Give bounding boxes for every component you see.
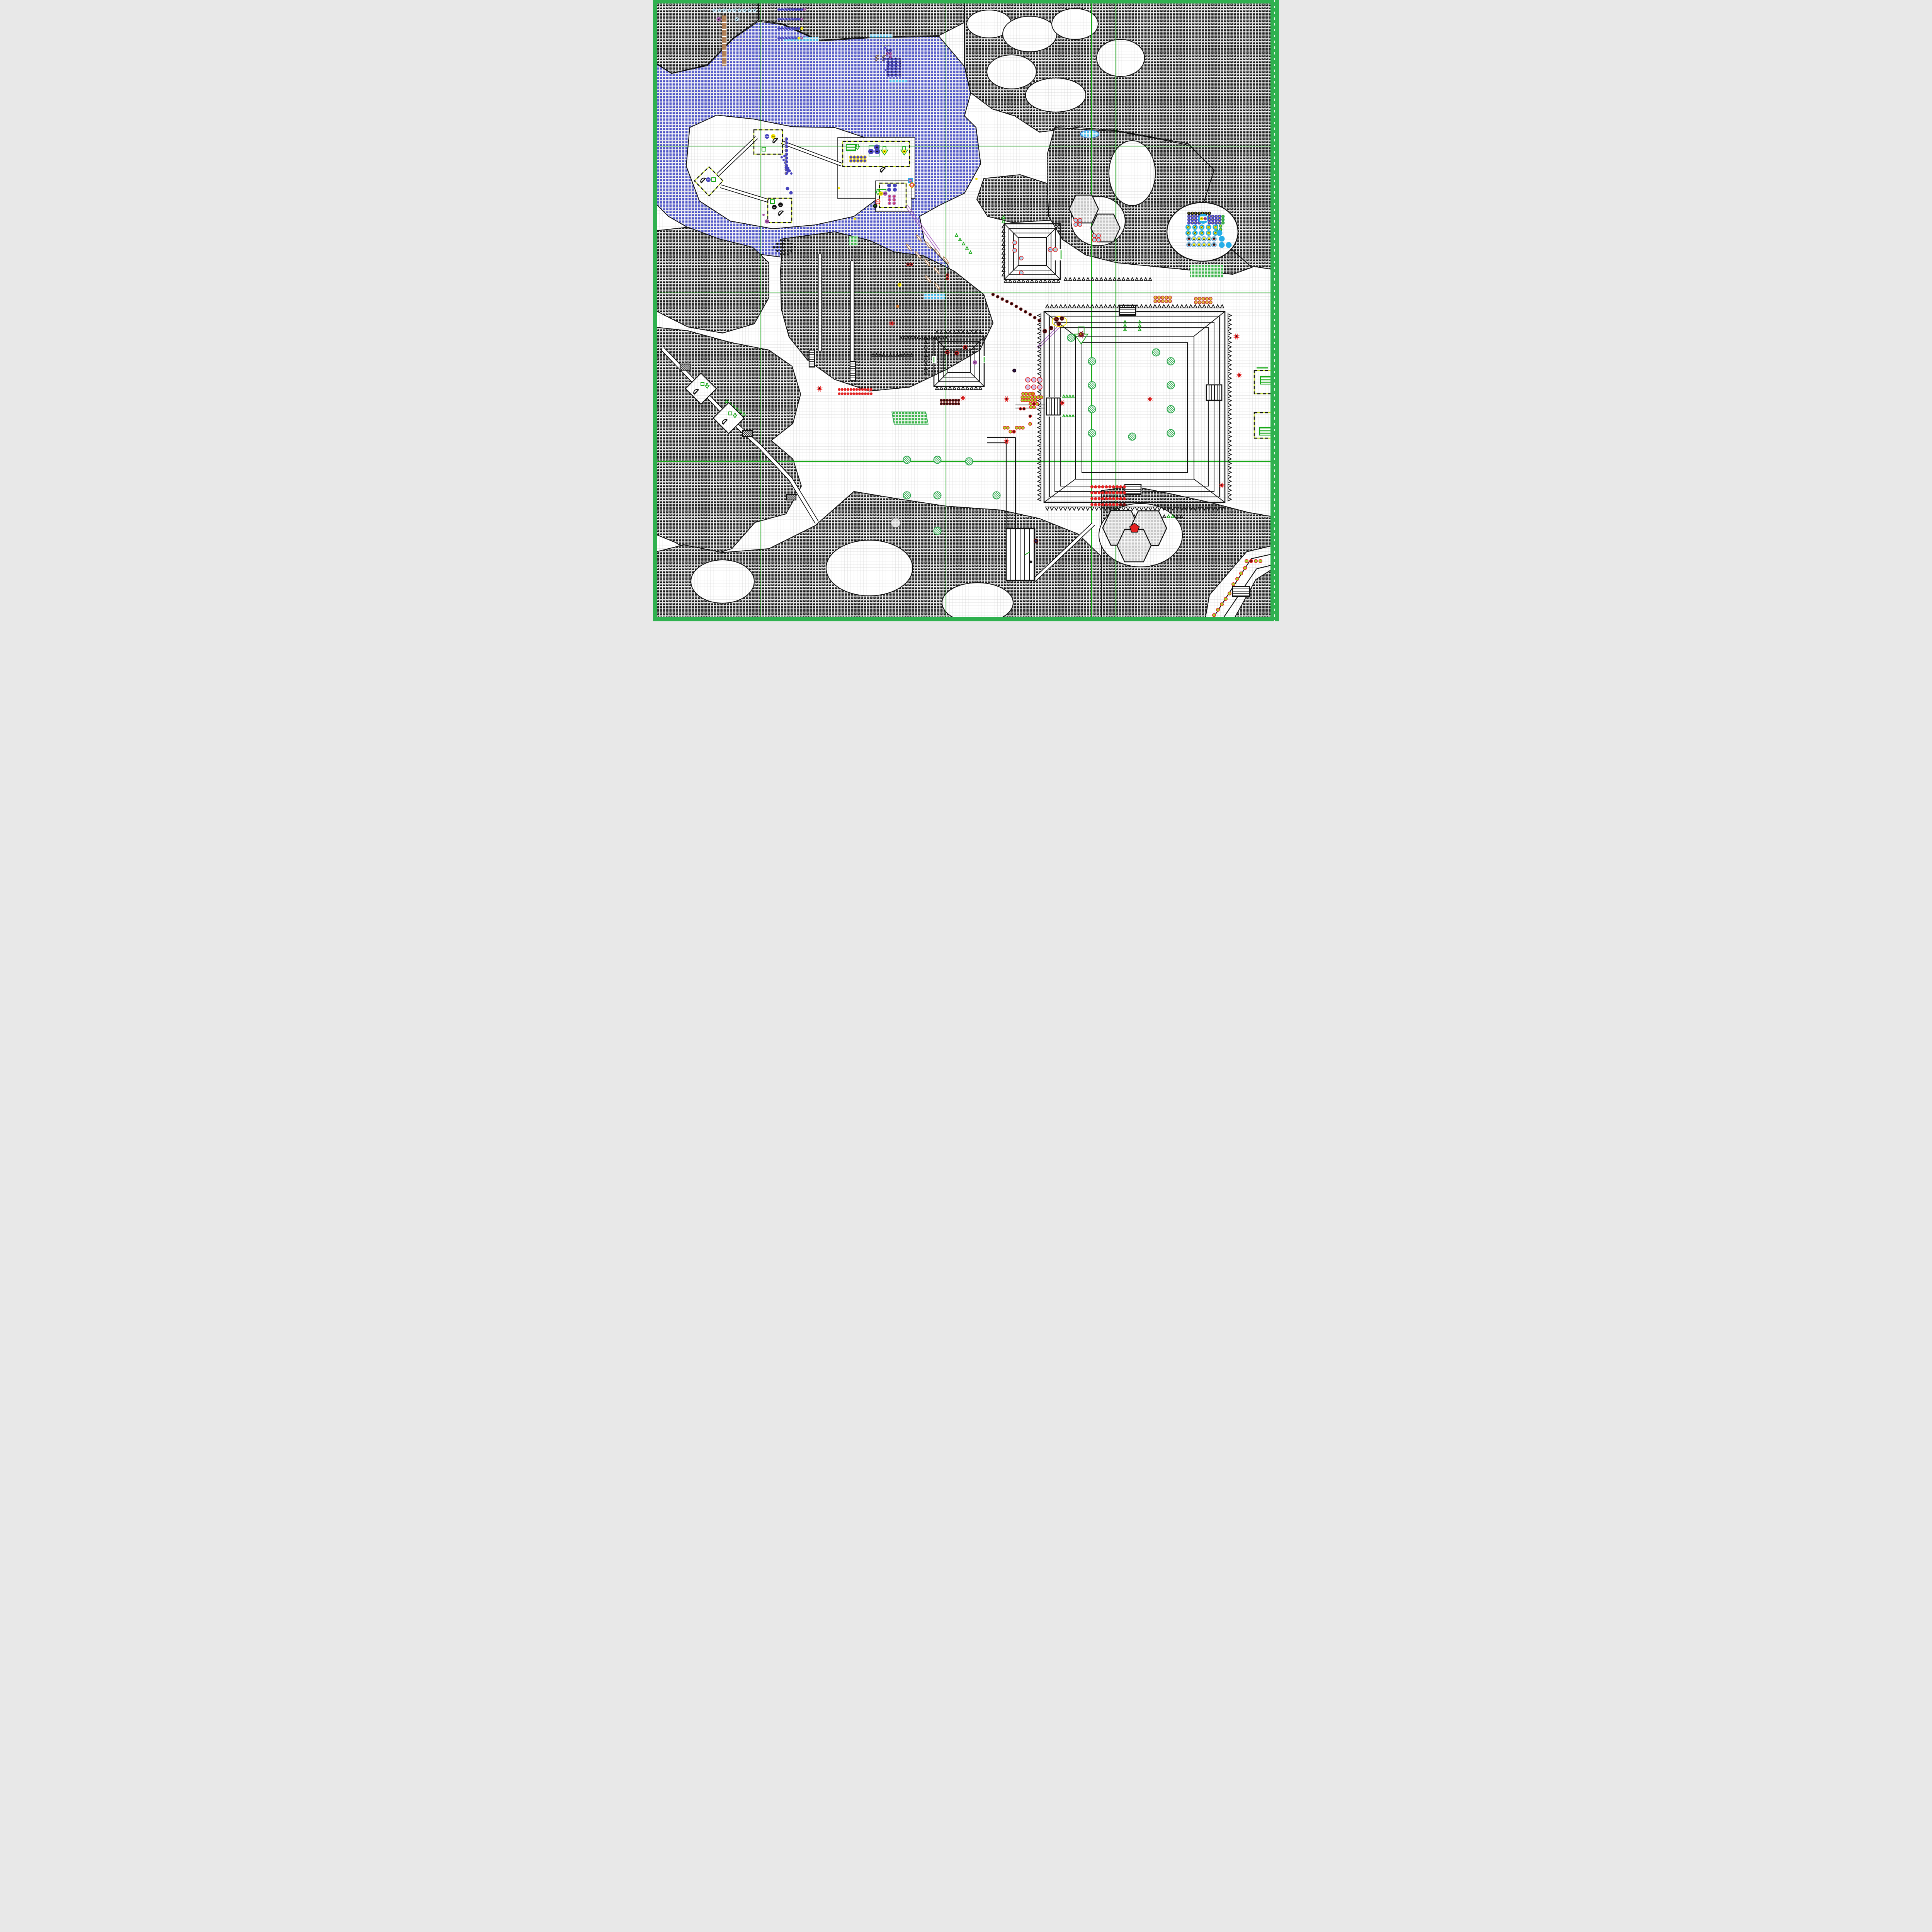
tree-icon bbox=[1167, 430, 1175, 437]
marker-label: 1 bbox=[779, 10, 780, 11]
dot bbox=[1092, 234, 1096, 238]
clearing bbox=[987, 55, 1036, 89]
dot bbox=[1161, 296, 1164, 299]
ship-inner bbox=[1213, 237, 1215, 240]
dot bbox=[1165, 296, 1168, 299]
map-viewport[interactable]: 13х13х66х10х10хОмДоОсБИМаЧуДНоАНе4хп0хпМ… bbox=[653, 0, 1279, 621]
marker-label: ♜ bbox=[1188, 222, 1190, 224]
dot bbox=[1032, 378, 1036, 382]
dot bbox=[949, 403, 951, 405]
marker-label: ♜ bbox=[1209, 219, 1210, 221]
dot bbox=[1025, 392, 1028, 395]
dot bbox=[780, 250, 782, 252]
axe-circle bbox=[785, 156, 788, 160]
marker-label: 2 bbox=[900, 66, 901, 67]
dot bbox=[1112, 497, 1115, 500]
marker-label: 2 bbox=[892, 69, 893, 71]
dot bbox=[1245, 560, 1248, 563]
fist-icon bbox=[870, 151, 872, 152]
palisade-bar bbox=[722, 15, 726, 66]
marker-label: 3 bbox=[896, 75, 897, 77]
fly-icon bbox=[903, 151, 905, 152]
ship-inner bbox=[1197, 243, 1200, 246]
dot bbox=[852, 393, 855, 395]
marker-label: ♜ bbox=[1212, 216, 1213, 218]
marker-label: Не bbox=[909, 180, 912, 182]
dot bbox=[1206, 301, 1209, 304]
dot bbox=[1036, 402, 1039, 405]
dot bbox=[1105, 497, 1108, 500]
eye bbox=[1221, 484, 1222, 486]
dot bbox=[787, 250, 789, 252]
tree-icon bbox=[1088, 358, 1096, 365]
hp5: 5хп bbox=[946, 350, 949, 354]
dot bbox=[907, 263, 910, 266]
dot bbox=[790, 243, 793, 245]
marker-label: 1 bbox=[900, 60, 901, 61]
marker-label: 1 bbox=[779, 19, 780, 21]
marker-label: 13х bbox=[1049, 327, 1053, 329]
tree-icon bbox=[966, 458, 973, 465]
marker-label: 66х bbox=[1055, 318, 1058, 321]
dot bbox=[1026, 385, 1030, 389]
dot bbox=[1194, 297, 1197, 300]
marker-label: 2 bbox=[892, 66, 893, 67]
dot bbox=[789, 191, 793, 195]
dot bbox=[1194, 301, 1197, 304]
dot bbox=[1094, 485, 1097, 488]
dot bbox=[1098, 503, 1101, 506]
dot-dark bbox=[1012, 430, 1015, 433]
shallow bbox=[886, 82, 910, 85]
fortress-ladder-s bbox=[1125, 485, 1141, 495]
marker-label: 2 bbox=[896, 69, 897, 71]
whip-box bbox=[1201, 232, 1203, 235]
marker-label: 2 bbox=[888, 72, 889, 74]
marker-label: 3 bbox=[791, 38, 792, 40]
dot bbox=[1232, 583, 1235, 586]
dot bbox=[943, 403, 945, 405]
axe-circle bbox=[785, 153, 788, 156]
tree-icon bbox=[934, 492, 941, 499]
dot bbox=[783, 253, 786, 255]
npc-ot: От bbox=[1034, 539, 1038, 543]
marker-label: ♜ bbox=[1195, 216, 1196, 218]
dot bbox=[1116, 491, 1119, 494]
marker-label: Но bbox=[884, 193, 887, 195]
dot bbox=[1037, 378, 1042, 382]
dot bbox=[1029, 402, 1032, 405]
hp5: 5хп bbox=[955, 351, 959, 355]
marker-label: 4хп bbox=[910, 185, 913, 186]
marker-label: ♜ bbox=[1212, 219, 1213, 221]
dot bbox=[940, 403, 942, 405]
dot bbox=[1021, 426, 1024, 429]
dot bbox=[954, 403, 957, 405]
marker-label: ♜ bbox=[1220, 225, 1221, 228]
dot bbox=[1019, 408, 1022, 410]
dot bbox=[1119, 485, 1122, 488]
marker-label: ♜ bbox=[1209, 213, 1210, 215]
dot bbox=[952, 399, 954, 401]
whip-box bbox=[1187, 226, 1190, 229]
dot bbox=[870, 393, 872, 395]
grass-gate bbox=[892, 412, 928, 424]
tree-icon bbox=[1088, 382, 1096, 389]
eye bbox=[819, 388, 820, 389]
marker-label: 2 bbox=[802, 19, 803, 21]
dot bbox=[853, 156, 856, 159]
marker-label: 2 bbox=[900, 69, 901, 71]
dot bbox=[1105, 491, 1108, 494]
dot bbox=[1006, 426, 1009, 429]
marker-label: ♜ bbox=[1215, 216, 1217, 218]
dot bbox=[893, 184, 897, 187]
marker-label: ♜ bbox=[1222, 222, 1224, 224]
dot bbox=[780, 239, 782, 241]
marker-label: 3 bbox=[900, 72, 901, 74]
dot bbox=[852, 388, 855, 391]
eye bbox=[1236, 335, 1237, 337]
marker-label: ♜ bbox=[1209, 216, 1210, 218]
world-map[interactable]: 13х13х66х10х10хОмДоОсБИМаЧуДНоАНе4хп0хпМ… bbox=[653, 0, 1279, 621]
ship-inner bbox=[1197, 237, 1200, 240]
dot bbox=[1206, 297, 1209, 300]
dot bbox=[858, 388, 861, 391]
dot bbox=[1105, 485, 1108, 488]
dot bbox=[1109, 491, 1112, 494]
marker-label: ♜ bbox=[1188, 219, 1190, 221]
stairs-green bbox=[1260, 376, 1272, 384]
dot bbox=[1168, 300, 1172, 303]
palisade bbox=[722, 15, 726, 66]
stairs-green bbox=[846, 145, 855, 151]
dot bbox=[1034, 399, 1037, 402]
dot bbox=[1154, 296, 1157, 299]
clearing bbox=[691, 560, 754, 603]
dot bbox=[838, 388, 841, 391]
marker-label: 5хп bbox=[964, 347, 967, 349]
dot bbox=[1161, 300, 1164, 303]
dot bbox=[856, 156, 859, 159]
dot bbox=[1123, 491, 1126, 494]
marker-label: 2 bbox=[785, 29, 786, 30]
dot bbox=[1220, 603, 1223, 606]
dot bbox=[1023, 408, 1026, 410]
dot-dark bbox=[1032, 402, 1036, 405]
marker-label: 3 bbox=[794, 29, 794, 30]
npc-m: М bbox=[873, 204, 878, 208]
ship-inner bbox=[1207, 243, 1210, 246]
marker-label: 3 bbox=[799, 10, 800, 11]
dot bbox=[1202, 297, 1205, 300]
npc-b: Б bbox=[765, 219, 769, 224]
stairs-green bbox=[1260, 427, 1271, 435]
npc-ma: Ма bbox=[1048, 248, 1053, 252]
wall-grate bbox=[1006, 529, 1035, 580]
dot bbox=[1119, 491, 1122, 494]
dot bbox=[1123, 503, 1126, 506]
npc-d: Д bbox=[879, 192, 883, 196]
dot bbox=[1027, 396, 1030, 399]
marker-label: И bbox=[718, 19, 719, 21]
dot bbox=[794, 246, 796, 248]
dot bbox=[762, 214, 765, 216]
dot bbox=[1029, 415, 1032, 418]
dot bbox=[1098, 491, 1101, 494]
marker-label: 1 bbox=[785, 10, 786, 11]
dot bbox=[780, 253, 782, 255]
dot bbox=[1109, 485, 1112, 488]
marker-label: До bbox=[772, 136, 774, 138]
dot bbox=[1027, 399, 1030, 402]
marker-label: 3 bbox=[797, 19, 798, 21]
dot bbox=[1074, 218, 1078, 222]
marker-label: 2 bbox=[788, 10, 789, 11]
marker-label: Ау bbox=[1204, 218, 1206, 220]
tree-icon bbox=[1129, 433, 1136, 440]
marker-label: ♜ bbox=[1222, 219, 1224, 221]
bridge-hatch bbox=[680, 364, 690, 370]
dot bbox=[1112, 491, 1115, 494]
marker-label: ♜ bbox=[1219, 216, 1220, 218]
tree-icon bbox=[1088, 430, 1096, 437]
marker-label: 3 bbox=[892, 75, 893, 77]
marker-label: 3 bbox=[797, 10, 798, 11]
marker-label: Чу bbox=[1054, 249, 1056, 251]
dot bbox=[1158, 296, 1161, 299]
stairs-green-frame bbox=[1260, 376, 1272, 384]
dot bbox=[1024, 310, 1027, 313]
fortress-gate-e bbox=[1206, 385, 1222, 400]
dot bbox=[1092, 238, 1096, 242]
dot bbox=[1119, 503, 1122, 506]
marker-label: ♜ bbox=[1192, 216, 1193, 218]
marker-label: 1 bbox=[779, 29, 780, 30]
dot bbox=[1078, 223, 1082, 226]
npc-os: Ос bbox=[706, 177, 711, 182]
dot bbox=[1032, 406, 1036, 409]
dot bbox=[854, 218, 856, 220]
marker-label: Ма bbox=[1049, 249, 1051, 251]
tree-icon bbox=[934, 456, 941, 464]
dot bbox=[949, 399, 951, 401]
dot bbox=[773, 246, 775, 248]
marker-label: ♜ bbox=[1192, 222, 1193, 224]
dot bbox=[1015, 426, 1018, 429]
dot bbox=[1031, 399, 1034, 402]
shallow bbox=[923, 293, 945, 299]
eye bbox=[1006, 398, 1007, 400]
dot bbox=[1015, 305, 1017, 308]
dot bbox=[910, 263, 913, 266]
dot bbox=[844, 388, 847, 391]
dot bbox=[1098, 485, 1101, 488]
hp0: 0хп bbox=[876, 200, 880, 204]
dot bbox=[1033, 316, 1036, 319]
bone-extra bbox=[735, 17, 739, 21]
dot bbox=[780, 246, 782, 248]
dot bbox=[1094, 491, 1097, 494]
marker-label: 10х bbox=[1060, 318, 1063, 320]
dot bbox=[1226, 242, 1232, 248]
npc-i: И bbox=[717, 17, 721, 22]
dot bbox=[787, 239, 789, 241]
dot bbox=[1090, 485, 1094, 488]
dot bbox=[776, 243, 779, 245]
dot bbox=[1034, 396, 1037, 399]
tree-icon bbox=[1167, 382, 1175, 389]
dot bbox=[957, 403, 960, 405]
dot bbox=[1001, 298, 1003, 300]
marker-label: ♜ bbox=[1215, 219, 1217, 221]
chain-count: 10х bbox=[1060, 316, 1064, 320]
dot bbox=[946, 277, 949, 280]
marker-label: 2 bbox=[892, 72, 893, 74]
marker-label: 1 bbox=[888, 51, 888, 52]
marker-label: Р bbox=[974, 362, 975, 364]
eye bbox=[1006, 440, 1007, 442]
misc-purple-dot bbox=[762, 214, 765, 216]
dot bbox=[781, 156, 783, 158]
marker-label: 2 bbox=[791, 19, 792, 21]
dot bbox=[1119, 497, 1122, 500]
dot bbox=[954, 399, 957, 401]
dot bbox=[1259, 560, 1262, 563]
quarry-hex bbox=[1117, 529, 1151, 562]
hp5: 5хп bbox=[963, 345, 967, 349]
npc-a: А bbox=[883, 150, 886, 153]
axe-circle bbox=[785, 138, 788, 141]
dot bbox=[1213, 614, 1216, 617]
ladder-hatch bbox=[850, 362, 855, 381]
marker-label: 2 bbox=[782, 10, 783, 11]
dot bbox=[858, 393, 861, 395]
marker-label: ♜ bbox=[1188, 213, 1190, 215]
dot bbox=[783, 243, 786, 245]
dot bbox=[1029, 313, 1031, 316]
marker-label: От bbox=[1035, 540, 1037, 543]
marker-label: 1 bbox=[900, 63, 901, 64]
npc-k: К bbox=[1031, 392, 1035, 396]
dot bbox=[864, 388, 867, 391]
ship-inner bbox=[1192, 243, 1195, 246]
dot bbox=[785, 166, 788, 170]
dot bbox=[850, 393, 852, 395]
dot bbox=[887, 188, 891, 192]
dot bbox=[1168, 296, 1172, 299]
dot bbox=[870, 388, 872, 391]
tree-icon bbox=[1153, 349, 1160, 356]
marker-label: 3 bbox=[805, 10, 806, 11]
dot bbox=[946, 399, 948, 401]
marker-label: 3 bbox=[797, 29, 798, 30]
tree-icon bbox=[993, 492, 1000, 499]
tree-icon bbox=[1167, 358, 1175, 365]
clearing bbox=[1097, 39, 1145, 77]
dot bbox=[847, 393, 849, 395]
marker-label: 1 bbox=[799, 38, 800, 40]
eye bbox=[1150, 398, 1150, 400]
dot bbox=[1123, 485, 1126, 488]
ship-inner bbox=[1213, 243, 1215, 246]
axe-circle bbox=[785, 160, 788, 163]
marker-label: М bbox=[874, 205, 876, 207]
dot bbox=[975, 178, 978, 180]
dot bbox=[1024, 396, 1027, 399]
shallow bbox=[869, 34, 893, 37]
marker-label: 2 bbox=[794, 10, 794, 11]
dot bbox=[946, 403, 948, 405]
ship-inner bbox=[1202, 243, 1205, 246]
border-top bbox=[653, 0, 1279, 3]
whip-box bbox=[1207, 232, 1210, 235]
dot bbox=[861, 388, 864, 391]
border-left bbox=[653, 0, 657, 621]
marker-label: ♜ bbox=[1195, 213, 1196, 215]
marker-label: С bbox=[1014, 370, 1015, 372]
dot bbox=[1021, 399, 1024, 402]
dot bbox=[1030, 561, 1032, 563]
dot bbox=[893, 188, 897, 192]
dot bbox=[776, 250, 779, 252]
marker-label: 1 bbox=[782, 19, 783, 21]
ship-inner bbox=[1187, 237, 1190, 240]
dot bbox=[1101, 497, 1104, 500]
clearing bbox=[942, 583, 1013, 621]
dot bbox=[1009, 430, 1012, 433]
ship-inner bbox=[1202, 237, 1205, 240]
dot bbox=[1026, 378, 1030, 382]
marker-label: 1 bbox=[892, 60, 893, 61]
marker-label: 3 bbox=[794, 19, 794, 21]
eye bbox=[891, 322, 892, 324]
dot bbox=[850, 388, 852, 391]
marker-label: ♜ bbox=[1219, 219, 1220, 221]
dot bbox=[1074, 223, 1078, 226]
dot bbox=[1022, 392, 1025, 395]
fist-icon bbox=[876, 151, 878, 152]
dot bbox=[888, 45, 889, 46]
dot bbox=[1019, 256, 1023, 260]
marker-label: 2 bbox=[802, 29, 803, 30]
dot bbox=[783, 246, 786, 248]
hp4: 4хп bbox=[910, 184, 914, 187]
pond bbox=[1080, 130, 1099, 138]
dot bbox=[1019, 308, 1022, 310]
dot bbox=[1240, 572, 1243, 575]
npc-do: До bbox=[771, 134, 776, 139]
dot bbox=[1101, 491, 1104, 494]
anvil-dot-circle bbox=[772, 205, 777, 209]
marker-label: 1 bbox=[896, 60, 897, 61]
dot bbox=[864, 393, 867, 395]
marker-label: 1 bbox=[802, 38, 803, 40]
dot bbox=[787, 253, 789, 255]
dot bbox=[1198, 297, 1201, 300]
dot bbox=[860, 159, 863, 162]
dot bbox=[1219, 236, 1225, 242]
dot bbox=[787, 169, 791, 173]
marker-label: 3 bbox=[896, 72, 897, 74]
marker-label: ♜ bbox=[1195, 219, 1196, 221]
dot bbox=[1243, 566, 1247, 570]
dot bbox=[1165, 300, 1168, 303]
marker-label: ♜ bbox=[1198, 213, 1200, 215]
axe-circle bbox=[785, 145, 788, 148]
marker-label: 2 bbox=[791, 10, 792, 11]
dot bbox=[883, 45, 884, 46]
